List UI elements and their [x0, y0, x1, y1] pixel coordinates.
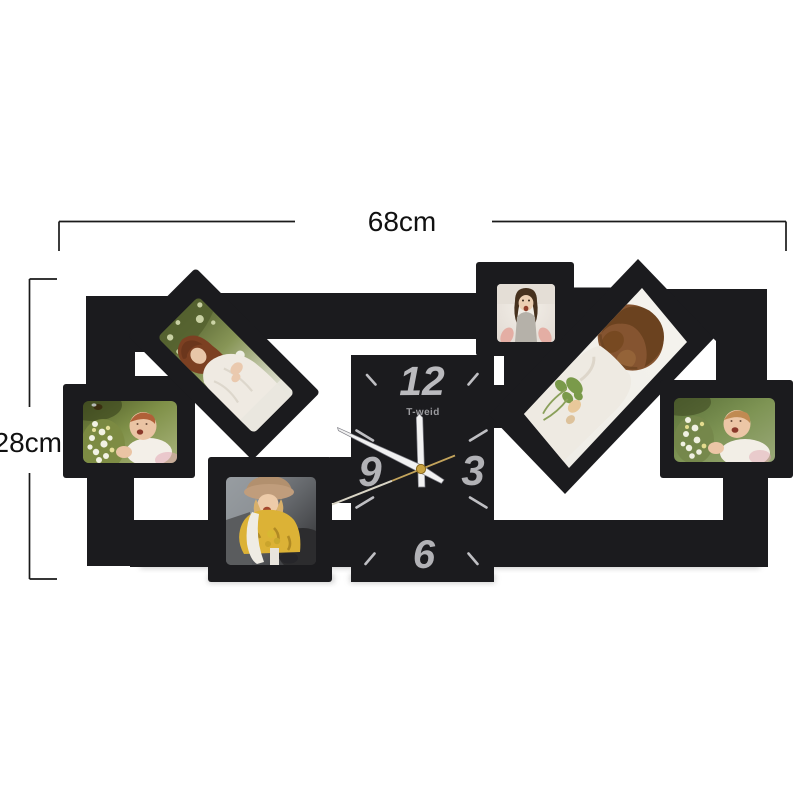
- svg-text:6: 6: [413, 533, 436, 577]
- svg-text:68cm: 68cm: [368, 206, 436, 237]
- svg-text:3: 3: [461, 447, 485, 494]
- svg-text:12: 12: [399, 358, 445, 404]
- svg-text:28cm: 28cm: [0, 427, 62, 458]
- svg-text:9: 9: [358, 448, 382, 495]
- svg-text:T-weid: T-weid: [406, 407, 440, 418]
